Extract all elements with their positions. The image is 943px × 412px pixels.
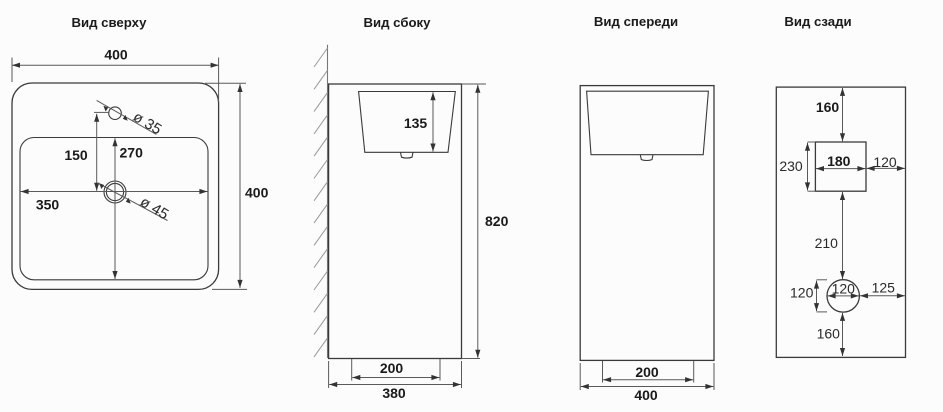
svg-text:160: 160 [816,99,840,115]
svg-text:400: 400 [634,387,658,403]
svg-text:820: 820 [485,213,509,229]
svg-text:200: 200 [380,360,404,376]
svg-text:350: 350 [36,197,60,213]
svg-text:125: 125 [872,280,896,296]
svg-text:200: 200 [635,364,659,380]
svg-text:230: 230 [779,158,803,174]
svg-text:180: 180 [827,153,851,169]
svg-text:120: 120 [873,154,897,170]
svg-text:380: 380 [382,385,406,401]
svg-text:Вид сверху: Вид сверху [72,15,148,30]
svg-text:Вид сзади: Вид сзади [784,14,851,29]
svg-text:160: 160 [817,326,841,342]
svg-text:ø 45: ø 45 [137,193,171,223]
svg-text:Вид сбоку: Вид сбоку [364,15,432,30]
svg-text:210: 210 [815,235,839,251]
svg-text:120: 120 [832,281,856,297]
svg-text:ø 35: ø 35 [130,108,164,138]
svg-text:135: 135 [404,115,428,131]
svg-text:270: 270 [120,145,144,161]
svg-text:400: 400 [245,185,269,201]
svg-text:150: 150 [64,147,88,163]
svg-text:Вид спереди: Вид спереди [594,14,678,29]
svg-text:400: 400 [104,47,128,63]
svg-text:120: 120 [790,285,814,301]
